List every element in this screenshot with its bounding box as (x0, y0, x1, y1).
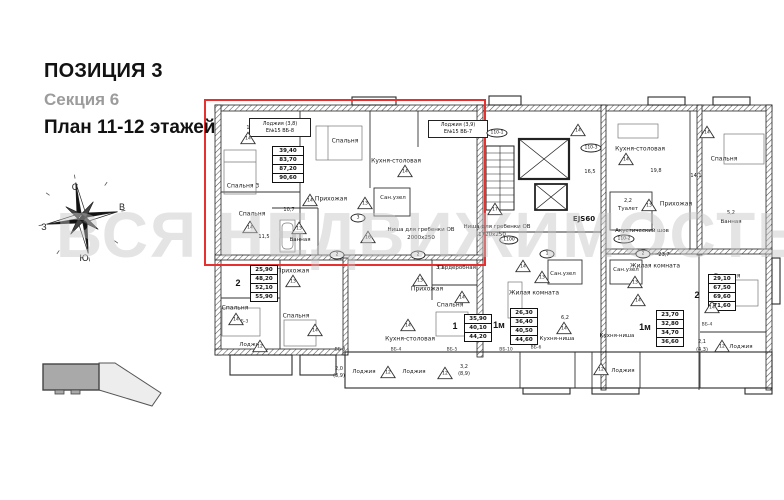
marker-triangle: 14 (228, 313, 244, 326)
room-label: Прихожая (277, 268, 309, 275)
area-value: 44,60 (511, 336, 537, 344)
marker-circle: 2 (330, 251, 345, 260)
unit-label-row: Е№15 ВБ-8 (250, 128, 310, 135)
page: Спальня 315,5СпальняКухня-столоваяПрихож… (0, 0, 784, 500)
room-label: Кухня-столовая (385, 336, 435, 343)
room-label: Спальня (283, 313, 310, 320)
marker-triangle: 12 (714, 340, 730, 353)
marker-triangle: 14 (618, 153, 634, 166)
room-label: Лоджия (729, 344, 752, 350)
marker-circle: 2 (636, 250, 651, 259)
room-label: (3,9) (333, 373, 345, 379)
area-table: 26,3036,4040,5044,60 (510, 308, 538, 345)
area-value: 48,20 (251, 275, 277, 284)
marker-triangle: 14 (302, 194, 318, 207)
area-value: 55,90 (251, 293, 277, 301)
room-label: 3,1 (436, 265, 444, 271)
area-value: 35,90 (465, 315, 491, 324)
compass-east-label: В (119, 202, 125, 212)
marker-triangle: 13 (534, 271, 550, 284)
area-table: 23,7032,8034,7036,60 (656, 310, 684, 347)
room-label: Кухня-ниша (600, 333, 635, 339)
area-table: 35,9040,1044,20 (464, 314, 492, 342)
marker-circle: 1 (540, 250, 555, 259)
room-label: (4,3) (696, 347, 708, 353)
marker-triangle: 17 (487, 203, 503, 216)
marker-triangle: 14 (397, 165, 413, 178)
room-label: 23,7 (658, 252, 669, 258)
unit-label-row: Лоджия (3,8) (250, 121, 310, 128)
room-label: ВБ-5 (447, 348, 458, 353)
room-label: Спальня (239, 211, 266, 218)
building-key-icon (35, 352, 175, 414)
title-block: ПОЗИЦИЯ 3 Секция 6 План 11-12 этажей (44, 60, 215, 139)
apartment-rooms-count: 2 (694, 290, 699, 300)
room-label: ВБ-3 (335, 348, 346, 353)
marker-triangle: 14 (704, 301, 720, 314)
area-value: 90,60 (273, 174, 303, 182)
room-label: 11,5 (258, 234, 269, 240)
area-value: 39,40 (273, 147, 303, 156)
room-label: 5,2 (727, 210, 735, 216)
room-label: 2000x250 (407, 235, 435, 241)
room-label: 10,7 (283, 207, 294, 213)
room-label: ВБ-4 (391, 348, 402, 353)
room-label: (8,9) (458, 371, 470, 377)
room-label: Жилая комната (509, 290, 559, 297)
room-label: Лоджия (611, 368, 634, 374)
area-value: 34,70 (657, 329, 683, 338)
plan-subtitle: План 11-12 этажей (44, 117, 215, 139)
area-value: 25,90 (251, 266, 277, 275)
unit-label-box: Лоджия (3,9)Е№15 ВБ-7 (428, 120, 488, 138)
unit-label-row: Лоджия (3,9) (429, 122, 487, 129)
room-label: Кухня-столовая (371, 158, 421, 165)
compass-south-label: Ю (79, 253, 88, 263)
room-label: 16,5 (584, 169, 595, 175)
room-label: 19,8 (650, 168, 661, 174)
marker-triangle: 12 (593, 363, 609, 376)
room-label: 2,1 (698, 339, 706, 345)
room-label: Сан.узел (380, 195, 406, 201)
area-value: 23,70 (657, 311, 683, 320)
room-label: Ниша для гребенки ОВ (387, 227, 454, 233)
room-label: 2,2 (624, 198, 632, 204)
room-label: Спальня (711, 156, 738, 163)
marker-triangle: 12 (252, 340, 268, 353)
marker-triangle: 14 (570, 124, 586, 137)
marker-triangle: 14 (515, 260, 531, 273)
marker-triangle: 14 (400, 319, 416, 332)
area-value: 52,10 (251, 284, 277, 293)
area-table: 39,4083,7087,2090,60 (272, 146, 304, 183)
compass-north-label: С (72, 182, 79, 192)
room-label: Ванная (289, 237, 310, 243)
marker-triangle: 13 (285, 275, 301, 288)
area-value: 32,80 (657, 320, 683, 329)
area-value: 87,20 (273, 165, 303, 174)
area-value: 40,50 (511, 327, 537, 336)
apartment-rooms-count: 2 (235, 278, 240, 288)
room-label: Прихожая (660, 201, 692, 208)
area-value: 67,50 (709, 284, 735, 293)
marker-triangle: 12 (380, 366, 396, 379)
marker-triangle: 14 (556, 322, 572, 335)
room-label: Кухня-столовая (615, 146, 665, 153)
section-subtitle: Секция 6 (44, 90, 215, 110)
area-value: 36,60 (657, 338, 683, 346)
unit-label-box: Лоджия (3,8)Е№15 ВБ-8 (249, 118, 311, 137)
room-label: Жилая комната (630, 263, 680, 270)
room-label: 2,0 (335, 366, 343, 372)
marker-triangle: 14 (242, 221, 258, 234)
area-value: 83,70 (273, 156, 303, 165)
room-label: Ванная (720, 219, 741, 225)
room-label: 14,1 (690, 173, 701, 179)
room-label: EJS60 (573, 215, 595, 223)
apartment-rooms-count: 1м (493, 320, 505, 330)
room-label: Прихожая (315, 196, 347, 203)
marker-triangle: 14 (454, 291, 470, 304)
room-label: Кухня-ниша (540, 336, 575, 342)
compass-west-label: З (41, 222, 46, 232)
room-label: Сан.узел (550, 271, 576, 277)
room-label: Прихожая (411, 286, 443, 293)
room-label: 6,2 (561, 315, 569, 321)
unit-label-row: Е№15 ВБ-7 (429, 129, 487, 136)
apartment-rooms-count: 1м (639, 322, 651, 332)
page-title: ПОЗИЦИЯ 3 (44, 60, 215, 83)
compass-rose-icon: С В З Ю (30, 165, 140, 275)
room-label: Спальня 3 (227, 183, 259, 190)
room-label: Ниша для гребенки ОВ (463, 224, 530, 230)
room-label: Спальня (332, 138, 359, 145)
marker-triangle: 14 (699, 126, 715, 139)
room-label: ВБ-4 (702, 323, 713, 328)
marker-triangle: 13 (291, 222, 307, 235)
marker-triangle: 13 (627, 276, 643, 289)
area-value: 44,20 (465, 333, 491, 341)
marker-triangle: 13 (641, 199, 657, 212)
marker-triangle: 14 (630, 294, 646, 307)
room-label: Лоджия (352, 369, 375, 375)
room-label: 3,2 (460, 364, 468, 370)
marker-circle: 110-1 (486, 129, 507, 138)
room-label: Лоджия (402, 369, 425, 375)
marker-circle: 1100 (499, 236, 518, 245)
area-value: 40,10 (465, 324, 491, 333)
room-label: Туалет (618, 206, 638, 212)
marker-circle: 110-3 (580, 144, 601, 153)
area-value: 36,40 (511, 318, 537, 327)
marker-circle: 110-2 (613, 235, 634, 244)
marker-circle: 2 (411, 251, 426, 260)
area-table: 25,9048,2052,1055,90 (250, 265, 278, 302)
room-label: ВБ-10 (499, 348, 513, 353)
room-label: Акустический шов (615, 228, 669, 234)
marker-triangle: 12 (437, 367, 453, 380)
room-label: ВБ-6 (531, 346, 542, 351)
area-value: 26,30 (511, 309, 537, 318)
apartment-rooms-count: 1 (452, 321, 457, 331)
marker-triangle: 16 (360, 231, 376, 244)
marker-triangle: 13 (357, 197, 373, 210)
marker-circle: 3 (351, 214, 366, 223)
area-value: 29,10 (709, 275, 735, 284)
marker-triangle: 13 (412, 274, 428, 287)
marker-triangle: 14 (307, 324, 323, 337)
room-label: Спальня (222, 305, 249, 312)
marker-triangle: 14 (240, 132, 256, 145)
